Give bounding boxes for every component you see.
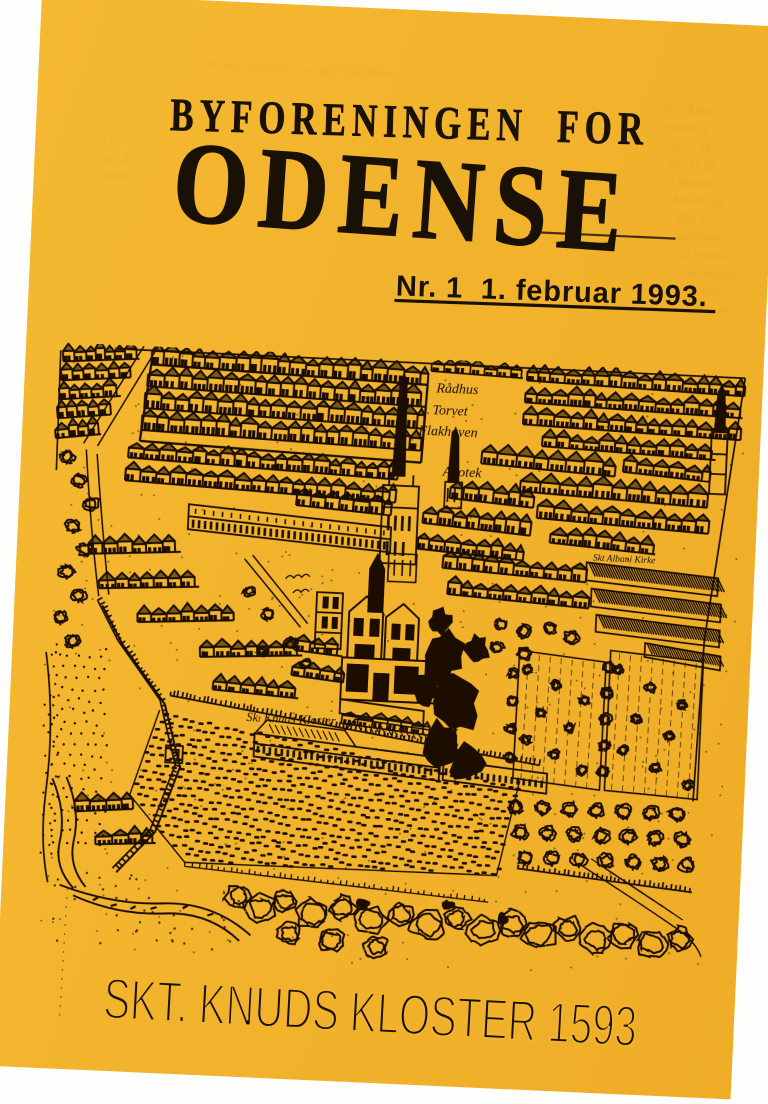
svg-text:byens gamle huse og torve blev: byens gamle huse og torve blev bbox=[209, 58, 392, 80]
svg-text:jan kl 19: jan kl 19 bbox=[668, 157, 717, 173]
svg-text:SKT. KNUDS KLOSTER 1593: SKT. KNUDS KLOSTER 1593 bbox=[102, 967, 639, 1059]
svg-text:1993: 1993 bbox=[101, 169, 129, 184]
svg-text:huset og: huset og bbox=[673, 193, 724, 209]
svg-text:BYFO: BYFO bbox=[99, 133, 133, 148]
svg-text:huse nu: huse nu bbox=[686, 302, 733, 318]
svg-text:byen 14: byen 14 bbox=[666, 139, 712, 155]
svg-text:velkomn: velkomn bbox=[677, 229, 726, 245]
svg-text:Apotek: Apotek bbox=[441, 465, 482, 482]
svg-text:til møde: til møde bbox=[679, 247, 726, 263]
svg-text:om byens: om byens bbox=[682, 265, 739, 282]
svg-text:Flakhaven: Flakhaven bbox=[417, 423, 478, 441]
svg-text:i Magda: i Magda bbox=[671, 175, 717, 191]
svg-text:Rådhus: Rådhus bbox=[435, 381, 479, 398]
svg-text:mødet i: mødet i bbox=[664, 120, 707, 136]
svg-text:nyt år: nyt år bbox=[100, 151, 134, 166]
svg-text:gamle: gamle bbox=[684, 283, 720, 299]
svg-text:NYTÅRS: NYTÅRS bbox=[662, 101, 712, 118]
svg-text:alle er: alle er bbox=[675, 211, 711, 227]
svg-text:Torvet: Torvet bbox=[432, 403, 469, 420]
